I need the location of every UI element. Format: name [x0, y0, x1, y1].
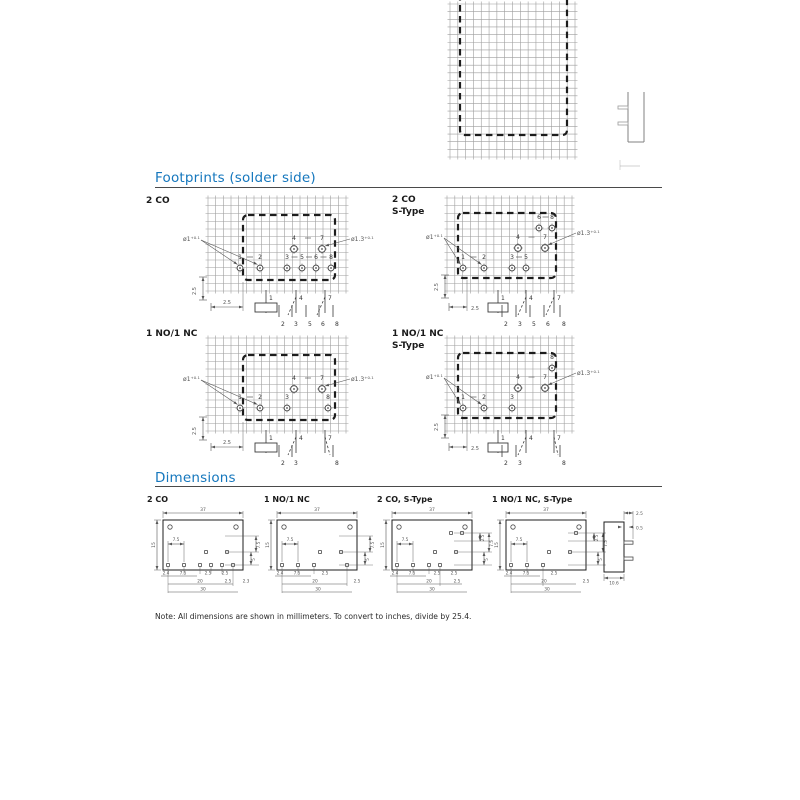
footprint-diagram-1no1nc-s: 123478ø1+0.1ø1.3+0.12.52.5147238 [426, 336, 600, 468]
svg-text:8: 8 [550, 354, 554, 361]
svg-text:2.5: 2.5 [192, 427, 198, 435]
body [506, 520, 586, 570]
svg-text:2: 2 [281, 321, 285, 328]
svg-text:30: 30 [200, 587, 206, 593]
schematic: 14723568 [255, 290, 339, 328]
svg-text:8: 8 [550, 214, 554, 221]
svg-text:7.5: 7.5 [256, 541, 262, 548]
package-outline [458, 213, 556, 278]
svg-text:37: 37 [429, 507, 435, 513]
svg-text:7.5: 7.5 [287, 537, 294, 543]
svg-text:3: 3 [510, 394, 514, 401]
svg-text:ø1+0.1: ø1+0.1 [426, 373, 443, 381]
svg-text:6: 6 [537, 214, 541, 221]
svg-text:3: 3 [518, 321, 522, 328]
svg-text:7: 7 [543, 234, 547, 241]
svg-text:3: 3 [510, 254, 514, 261]
svg-text:2.5: 2.5 [434, 423, 440, 431]
svg-text:ø1.3+0.1: ø1.3+0.1 [577, 369, 600, 377]
svg-text:2.5: 2.5 [205, 571, 212, 577]
svg-text:ø1.3+0.1: ø1.3+0.1 [351, 235, 374, 243]
svg-text:5: 5 [300, 254, 304, 261]
svg-text:4: 4 [299, 295, 303, 302]
svg-text:5: 5 [251, 558, 257, 561]
svg-text:2.5: 2.5 [192, 287, 198, 295]
svg-text:7.5: 7.5 [173, 537, 180, 543]
pitch-dimensions: 2.52.5 [192, 277, 243, 311]
svg-text:2.4: 2.4 [506, 571, 513, 577]
pins [396, 532, 464, 567]
svg-text:7.5: 7.5 [370, 541, 376, 548]
dimension-drawing-1-no-1-nc: 37157.57.552.47.52.5202.530 [265, 507, 376, 593]
svg-text:37: 37 [200, 507, 206, 513]
schematic: 14723568 [488, 290, 566, 328]
package-outline [458, 353, 556, 418]
datasheet-page: Footprints (solder side) 2 CO 2 CO S-Typ… [0, 0, 800, 800]
svg-text:2.5: 2.5 [583, 579, 590, 585]
svg-text:7.5: 7.5 [516, 537, 523, 543]
svg-text:7.5: 7.5 [523, 571, 530, 577]
svg-text:7.5: 7.5 [409, 571, 416, 577]
diagram-canvas: 12356847ø1+0.1ø1.3+0.12.52.5147235681235… [0, 0, 800, 800]
svg-text:7: 7 [320, 235, 324, 242]
svg-text:8: 8 [335, 321, 339, 328]
svg-text:2.4: 2.4 [163, 571, 170, 577]
svg-text:7: 7 [320, 375, 324, 382]
svg-text:20: 20 [312, 579, 318, 585]
svg-text:1: 1 [461, 394, 465, 401]
svg-text:10.6: 10.6 [609, 581, 619, 587]
svg-text:1: 1 [269, 435, 273, 442]
pins [510, 532, 578, 567]
svg-text:ø1+0.1: ø1+0.1 [426, 233, 443, 241]
svg-text:37: 37 [314, 507, 320, 513]
svg-text:2.5: 2.5 [223, 440, 231, 446]
svg-text:2: 2 [504, 321, 508, 328]
pins: 12356847 [236, 235, 336, 273]
svg-text:2: 2 [258, 254, 262, 261]
svg-text:4: 4 [529, 435, 533, 442]
svg-text:5: 5 [365, 558, 371, 561]
pins: 123478 [459, 354, 557, 413]
pins [167, 551, 235, 567]
svg-text:7.5: 7.5 [180, 571, 187, 577]
svg-text:5: 5 [598, 558, 604, 561]
svg-text:1: 1 [461, 254, 465, 261]
svg-text:8: 8 [326, 394, 330, 401]
body [163, 520, 243, 570]
svg-text:4: 4 [292, 235, 296, 242]
svg-text:2: 2 [504, 460, 508, 467]
svg-text:7.5: 7.5 [402, 537, 409, 543]
pitch-dimensions: 2.52.5 [192, 417, 243, 451]
svg-text:2.5: 2.5 [222, 571, 229, 577]
svg-text:7: 7 [557, 435, 561, 442]
svg-text:4: 4 [292, 375, 296, 382]
svg-text:15: 15 [151, 542, 157, 548]
svg-text:5: 5 [524, 254, 528, 261]
svg-text:3: 3 [285, 254, 289, 261]
footprint-diagram-2co-s: 12354768ø1+0.1ø1.3+0.12.52.514723568 [426, 196, 600, 329]
svg-text:30: 30 [544, 587, 550, 593]
svg-text:3: 3 [285, 394, 289, 401]
svg-text:ø1.3+0.1: ø1.3+0.1 [577, 229, 600, 237]
svg-text:2.5: 2.5 [594, 534, 600, 541]
svg-text:3: 3 [294, 460, 298, 467]
dimension-drawing-2-co-s-type: 37157.57.52.552.47.52.52.5202.530 [380, 507, 495, 593]
svg-text:8: 8 [562, 460, 566, 467]
svg-text:20: 20 [197, 579, 203, 585]
svg-text:ø1+0.1: ø1+0.1 [183, 235, 200, 243]
svg-text:2.5: 2.5 [434, 283, 440, 291]
svg-text:6: 6 [314, 254, 318, 261]
svg-text:2.5: 2.5 [636, 511, 643, 517]
svg-text:2.5: 2.5 [354, 579, 361, 585]
svg-text:30: 30 [315, 587, 321, 593]
svg-text:2: 2 [482, 394, 486, 401]
svg-text:20: 20 [426, 579, 432, 585]
svg-text:2.5: 2.5 [225, 579, 232, 585]
svg-text:2.5: 2.5 [322, 571, 329, 577]
mounting-holes [168, 525, 238, 529]
svg-text:1: 1 [501, 295, 505, 302]
mounting-holes [397, 525, 467, 529]
pins: 123847 [236, 375, 333, 413]
svg-text:4: 4 [516, 374, 520, 381]
svg-text:15: 15 [265, 542, 271, 548]
pins [281, 551, 349, 567]
svg-text:ø1.3+0.1: ø1.3+0.1 [351, 375, 374, 383]
svg-text:8: 8 [335, 460, 339, 467]
svg-text:2.5: 2.5 [451, 571, 458, 577]
svg-text:5: 5 [532, 321, 536, 328]
svg-text:ø1+0.1: ø1+0.1 [183, 375, 200, 383]
svg-text:6: 6 [546, 321, 550, 328]
svg-text:4: 4 [529, 295, 533, 302]
mounting-holes [282, 525, 352, 529]
dimension-drawing-1-no-1-nc-s-type: 37157.57.52.552.47.52.5202.530 [494, 507, 609, 593]
svg-text:2: 2 [482, 254, 486, 261]
svg-text:4: 4 [299, 435, 303, 442]
pitch-dimensions: 2.52.5 [434, 275, 479, 312]
svg-text:2.4: 2.4 [392, 571, 399, 577]
svg-text:5: 5 [308, 321, 312, 328]
svg-text:2.5: 2.5 [471, 446, 479, 452]
svg-text:2.3: 2.3 [243, 579, 250, 585]
svg-text:8: 8 [562, 321, 566, 328]
svg-text:7: 7 [557, 295, 561, 302]
svg-text:2.5: 2.5 [551, 571, 558, 577]
svg-text:2.5: 2.5 [471, 306, 479, 312]
svg-text:30: 30 [429, 587, 435, 593]
svg-text:2.5: 2.5 [480, 534, 486, 541]
svg-text:5: 5 [484, 558, 490, 561]
svg-text:2.5: 2.5 [223, 300, 231, 306]
svg-text:1: 1 [269, 295, 273, 302]
body [277, 520, 357, 570]
svg-text:0.5: 0.5 [636, 526, 643, 532]
mounting-holes [511, 525, 581, 529]
side-view: 2.50.510.6 [604, 511, 643, 587]
footprint-diagram-1no1nc: 123847ø1+0.1ø1.3+0.12.52.5147238 [183, 336, 374, 468]
pitch-dimensions: 2.52.5 [434, 415, 479, 452]
top-fragment-side-element [618, 92, 644, 170]
svg-text:1: 1 [501, 435, 505, 442]
svg-text:7: 7 [328, 435, 332, 442]
svg-text:3: 3 [294, 321, 298, 328]
top-fragment-outline [460, 0, 567, 135]
svg-text:2: 2 [281, 460, 285, 467]
svg-text:2.5: 2.5 [434, 571, 441, 577]
svg-text:15: 15 [380, 542, 386, 548]
hole-callouts: ø1+0.1ø1.3+0.1 [183, 235, 374, 266]
svg-text:8: 8 [329, 254, 333, 261]
svg-text:2.5: 2.5 [454, 579, 461, 585]
grid [206, 196, 349, 294]
svg-text:20: 20 [541, 579, 547, 585]
body [392, 520, 472, 570]
svg-text:2: 2 [258, 394, 262, 401]
schematic: 147238 [488, 430, 566, 467]
svg-text:15: 15 [494, 542, 500, 548]
svg-text:7.5: 7.5 [294, 571, 301, 577]
svg-text:3: 3 [518, 460, 522, 467]
dimension-drawing-2-co: 37157.57.552.47.52.52.5202.52.330 [151, 507, 262, 593]
pins: 12354768 [459, 214, 557, 273]
hole-callouts: ø1+0.1ø1.3+0.1 [183, 375, 374, 406]
svg-text:7: 7 [543, 374, 547, 381]
svg-text:6: 6 [321, 321, 325, 328]
top-fragment [448, 0, 645, 170]
svg-text:37: 37 [543, 507, 549, 513]
svg-text:4: 4 [516, 234, 520, 241]
footprint-diagram-2co: 12356847ø1+0.1ø1.3+0.12.52.514723568 [183, 196, 374, 329]
grid [206, 336, 349, 434]
schematic: 147238 [255, 430, 339, 467]
svg-text:2.4: 2.4 [277, 571, 284, 577]
svg-text:7: 7 [328, 295, 332, 302]
